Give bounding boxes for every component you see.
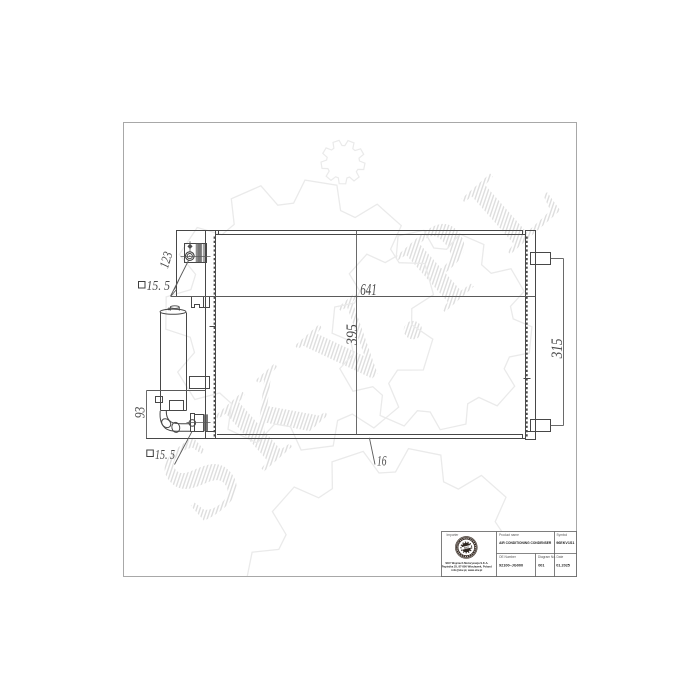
svg-text:93: 93 [133, 407, 149, 419]
svg-text:Importer: Importer [447, 533, 460, 537]
svg-text:Symbol: Symbol [557, 533, 568, 537]
svg-text:92100–JG000: 92100–JG000 [499, 564, 523, 568]
svg-text:Date: Date [557, 555, 564, 559]
svg-text:16: 16 [377, 453, 387, 469]
svg-text:SKV Wojciech Motoryzacja S.K.A: SKV Wojciech Motoryzacja S.K.A. [445, 561, 488, 565]
svg-text:01.2025: 01.2025 [556, 564, 570, 568]
svg-text:15. 5: 15. 5 [155, 447, 175, 462]
svg-text:Product name: Product name [499, 533, 519, 537]
svg-text:Papieżka 25, 87-800 Włocławek,: Papieżka 25, 87-800 Włocławek, Poland [442, 564, 492, 568]
svg-text:96EKV1S1: 96EKV1S1 [556, 541, 574, 545]
svg-text:OE Number: OE Number [499, 555, 517, 559]
svg-text:315: 315 [549, 338, 566, 359]
svg-text:Diagram No.: Diagram No. [538, 555, 556, 559]
svg-text:15. 5: 15. 5 [147, 279, 171, 294]
svg-text:641: 641 [360, 280, 377, 299]
svg-text:AIR CONDITIONING CONDENSER: AIR CONDITIONING CONDENSER [499, 541, 552, 545]
svg-text:info@skv.pl, www.skv.pl: info@skv.pl, www.skv.pl [451, 568, 482, 572]
svg-text:395: 395 [344, 324, 361, 346]
svg-text:001: 001 [538, 564, 544, 568]
